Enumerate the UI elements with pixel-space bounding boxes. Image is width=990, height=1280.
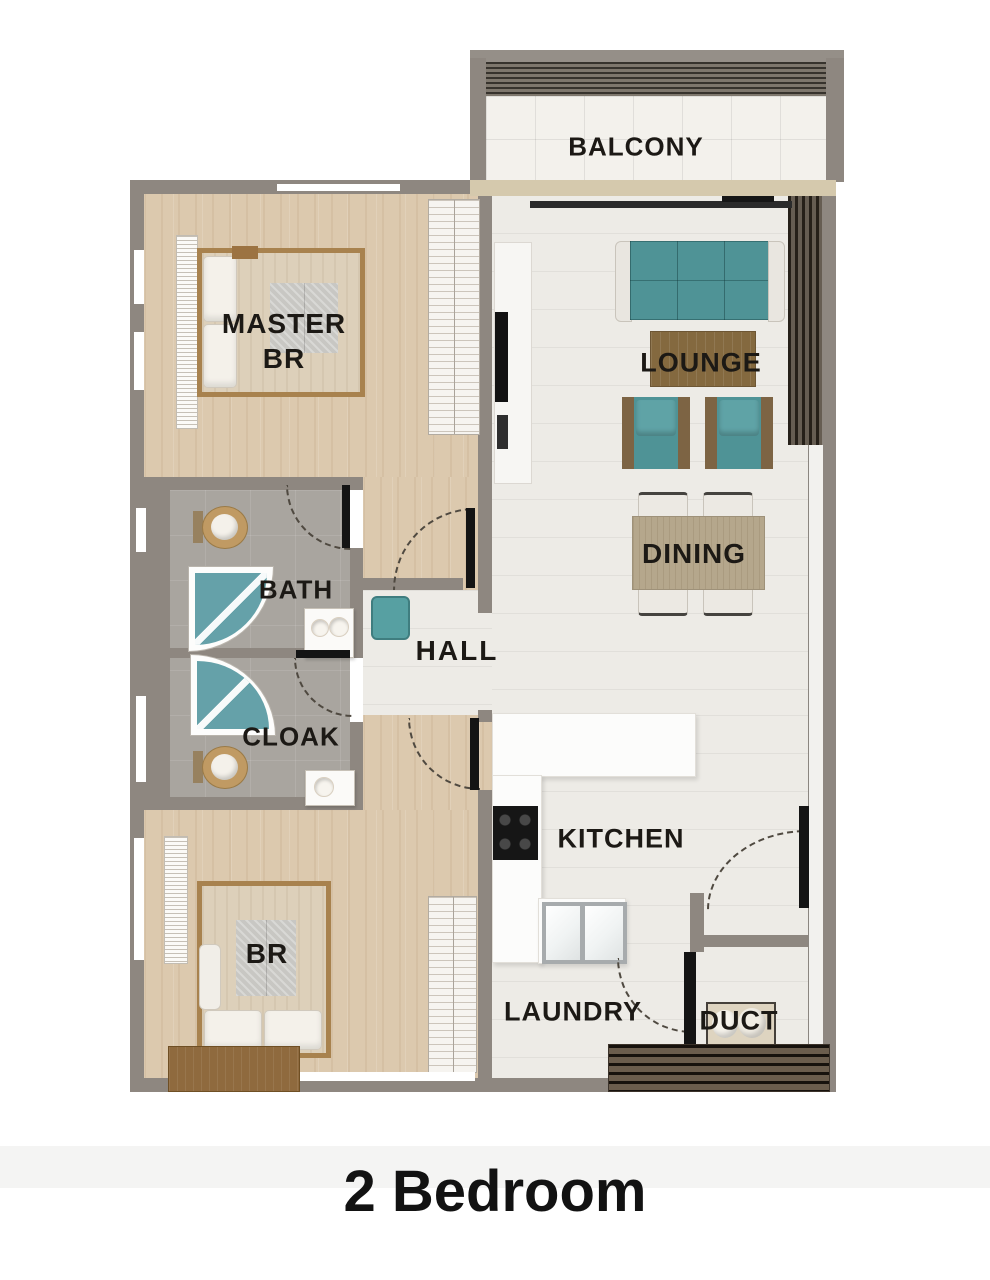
door-leaf-bedroom2	[470, 718, 479, 790]
window-master-west-b	[134, 332, 144, 390]
pillow-bedroom2-2	[264, 1010, 322, 1050]
sofa-armrest-right	[768, 241, 785, 322]
washer-unit-left	[542, 902, 584, 964]
armchair-right	[705, 397, 773, 469]
wall-bedroom2-east	[478, 790, 492, 1078]
hall-pouf	[371, 596, 410, 640]
wall-bath-west-thick	[144, 490, 170, 797]
label-kitchen: KITCHEN	[558, 824, 685, 855]
door-leaf-master	[466, 508, 475, 588]
window-bedroom2-south	[297, 1072, 475, 1081]
label-balcony: BALCONY	[568, 132, 704, 163]
toilet-bath-lid	[211, 514, 238, 540]
tv-screen	[495, 312, 508, 402]
label-master-line1: MASTER	[222, 308, 346, 340]
label-bath: BATH	[259, 575, 333, 606]
window-master-north	[277, 184, 400, 191]
door-leaf-laundry	[684, 952, 696, 1047]
door-leaf-kitchen	[799, 806, 809, 908]
wall-mid-vertical	[478, 194, 492, 613]
window-bedroom2-west	[134, 838, 144, 960]
label-laundry: LAUNDRY	[504, 997, 642, 1028]
dining-chair-4	[703, 586, 753, 616]
label-duct: DUCT	[700, 1006, 779, 1037]
kitchen-counter-top	[492, 713, 696, 777]
window-cloak-west	[136, 696, 146, 782]
armchair-left	[622, 397, 690, 469]
vanity-cloak-bowl	[314, 777, 334, 797]
balcony-wall-west	[470, 58, 486, 182]
label-hall: HALL	[416, 635, 499, 667]
dining-chair-3	[638, 586, 688, 616]
wall-bath-east-a	[350, 477, 363, 487]
wardrobe-master	[428, 199, 480, 435]
window-louver-master	[176, 235, 198, 429]
label-master-line2: BR	[263, 343, 305, 375]
sofa	[615, 241, 785, 320]
label-lounge: LOUNGE	[640, 348, 762, 379]
toilet-cloak	[193, 746, 249, 790]
balcony-sliding-door-track	[530, 201, 792, 208]
door-leaf-cloak	[296, 650, 350, 658]
armchair-left-pillow	[636, 400, 676, 436]
dresser-bedroom2	[168, 1046, 300, 1092]
blinds-living-east	[788, 192, 822, 445]
cooktop	[493, 806, 538, 860]
window-louver-bedroom2	[164, 836, 188, 964]
vanity-cloak	[305, 770, 355, 806]
sofa-seat	[630, 241, 770, 320]
plan-title: 2 Bedroom	[0, 1158, 990, 1225]
washer-unit-right	[581, 902, 627, 964]
balcony-parapet-cap	[470, 50, 844, 62]
balcony-sliding-door-handle	[722, 196, 774, 202]
balcony-railing	[486, 62, 826, 96]
toilet-cloak-lid	[211, 754, 238, 780]
vanity-bath-bowl-2	[329, 617, 349, 637]
window-bath-west	[136, 508, 146, 552]
nightstand-master	[232, 246, 258, 259]
wall-bath-divider	[160, 648, 310, 658]
wall-duct-north	[690, 935, 822, 947]
label-bedroom2: BR	[246, 938, 288, 970]
wall-east	[822, 192, 836, 1078]
window-master-west-a	[134, 250, 144, 304]
wall-hall-kitchen-stub	[478, 710, 492, 722]
label-dining: DINING	[642, 538, 746, 570]
curtain-east	[808, 445, 823, 1078]
media-box	[497, 415, 508, 449]
wardrobe-bedroom2	[428, 896, 477, 1073]
bench-slatted	[608, 1044, 830, 1092]
balcony-wall-east	[826, 58, 844, 182]
floor-plan-canvas: BALCONY MASTER BR LOUNGE DINING BATH HAL…	[0, 0, 990, 1280]
vanity-bath-bowl-1	[311, 619, 329, 637]
kitchen-counter-left	[492, 775, 542, 963]
chair-bedroom2	[199, 944, 221, 1010]
pillow-bedroom2-1	[204, 1010, 262, 1050]
door-leaf-bath	[342, 485, 350, 548]
armchair-right-pillow	[719, 400, 759, 436]
label-cloak: CLOAK	[242, 722, 339, 753]
toilet-bath	[193, 506, 249, 550]
balcony-threshold	[470, 180, 836, 196]
